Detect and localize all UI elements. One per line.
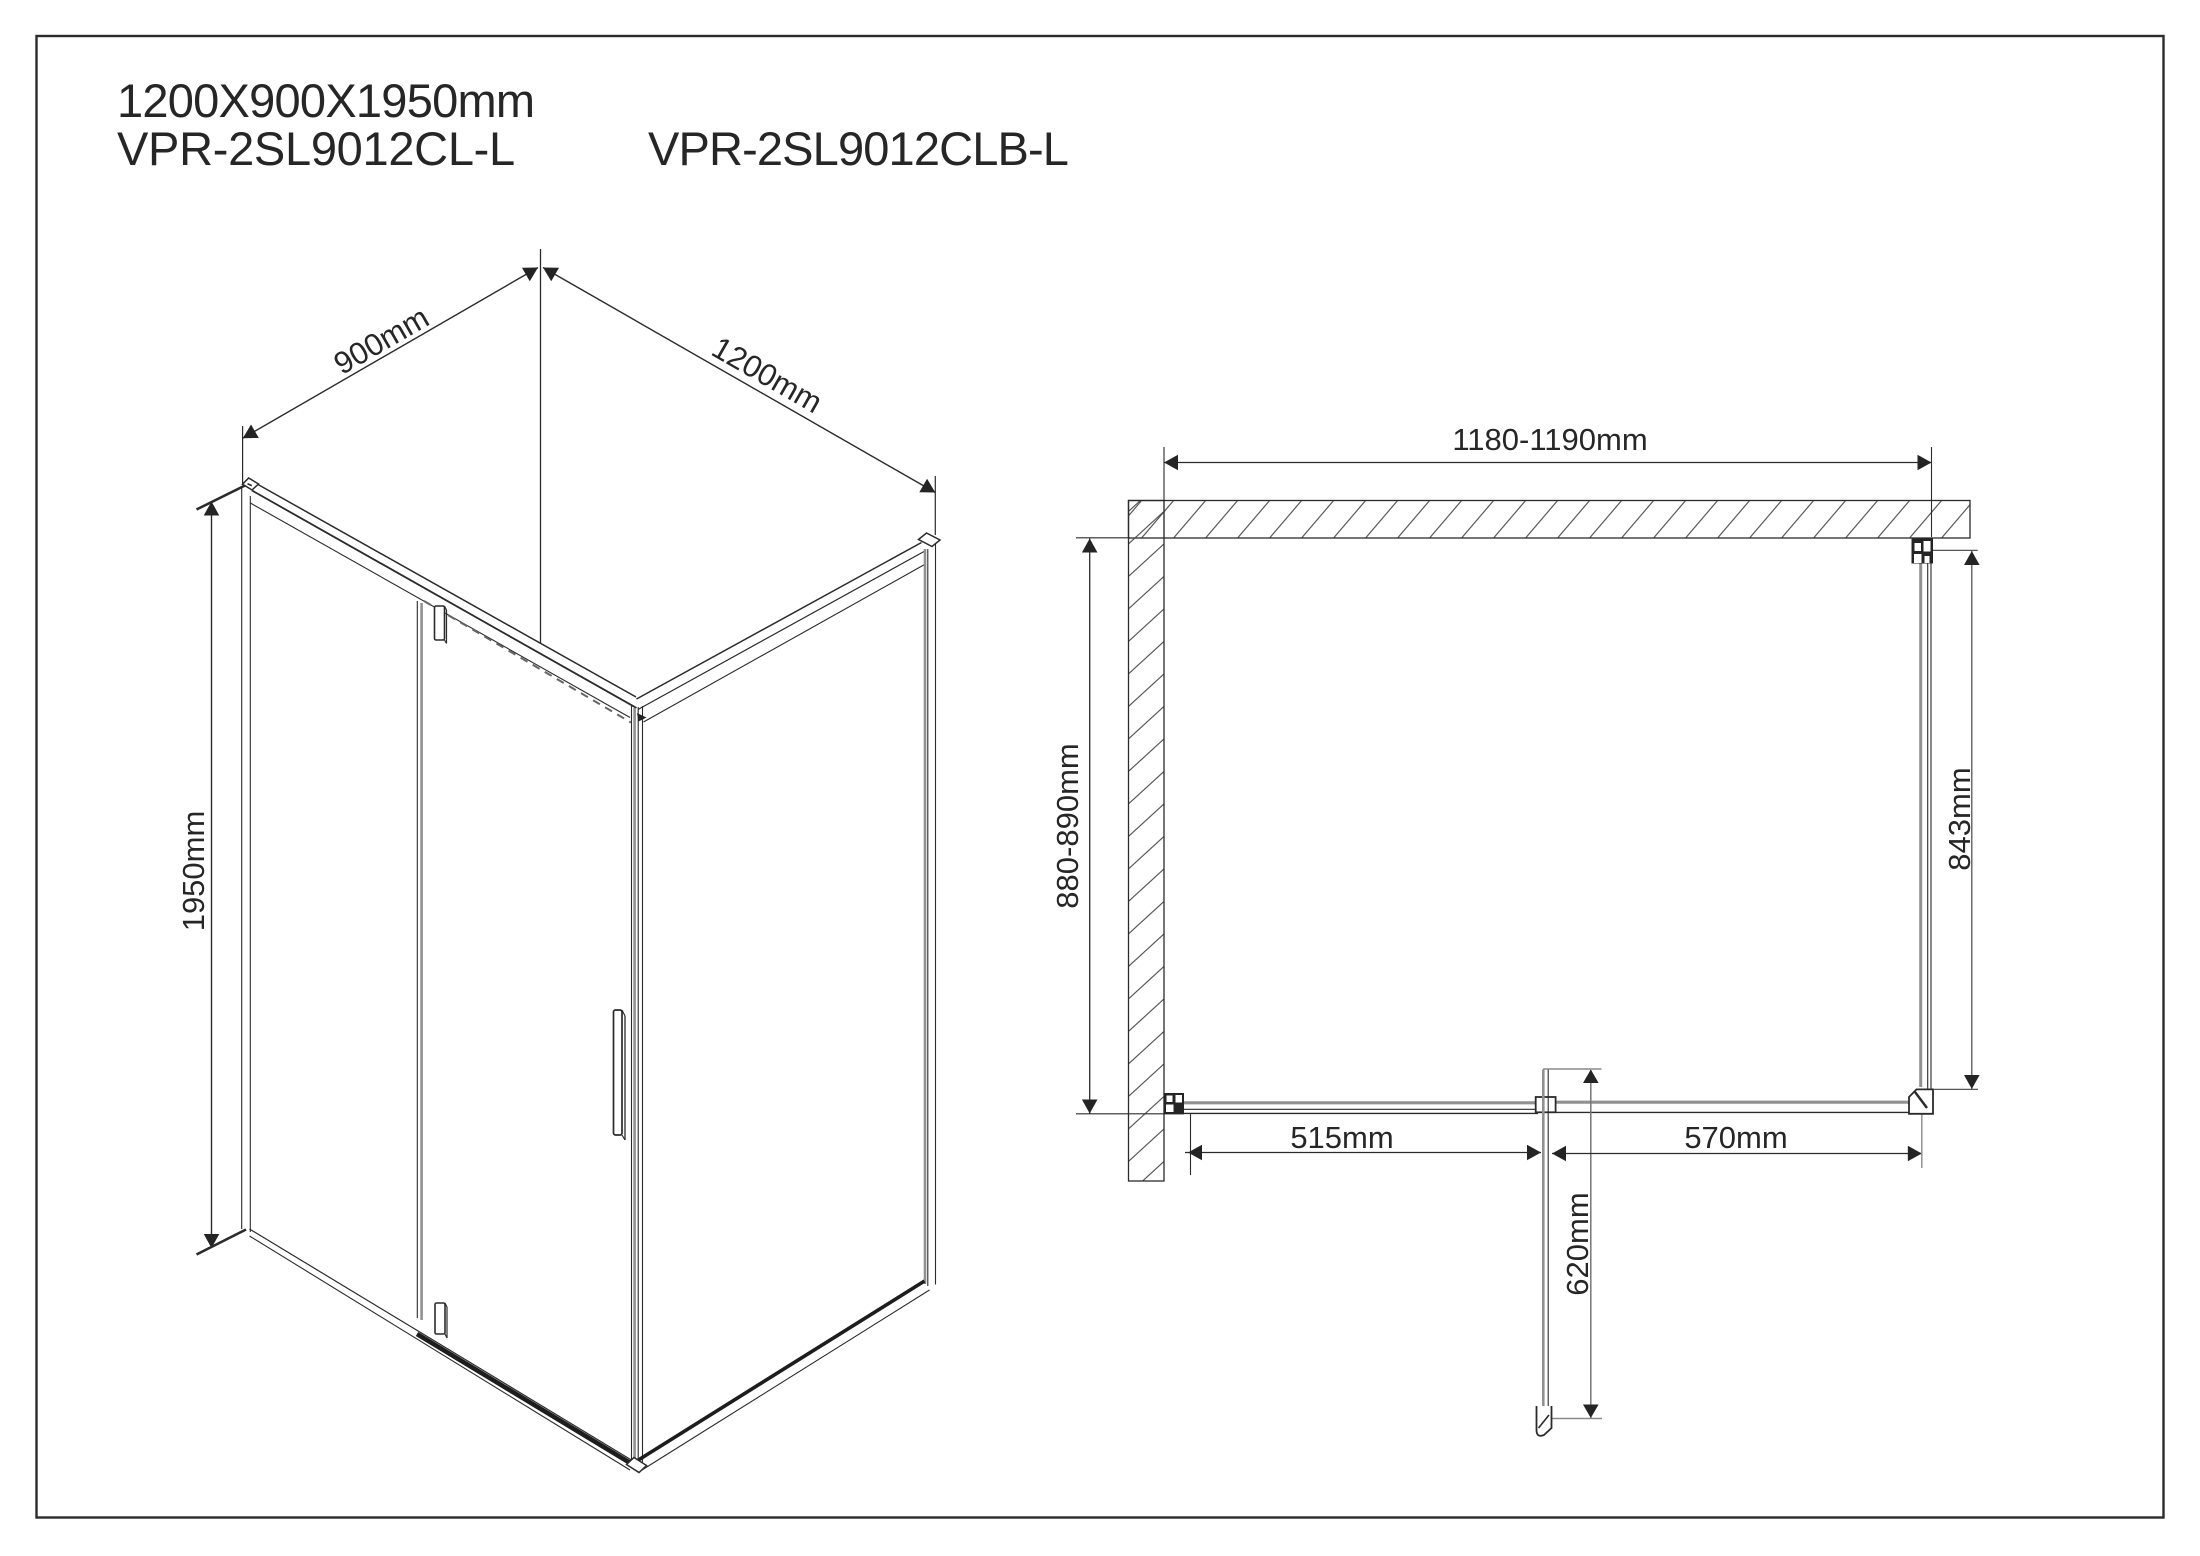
svg-text:900mm: 900mm [328, 299, 435, 381]
svg-text:VPR-2SL9012CLB-L: VPR-2SL9012CLB-L [648, 122, 1068, 175]
svg-text:880-890mm: 880-890mm [1050, 743, 1085, 908]
svg-text:570mm: 570mm [1684, 1120, 1787, 1155]
svg-text:1200X900X1950mm: 1200X900X1950mm [117, 74, 534, 127]
svg-text:VPR-2SL9012CL-L: VPR-2SL9012CL-L [117, 122, 515, 175]
svg-text:620mm: 620mm [1560, 1192, 1595, 1295]
svg-text:1950mm: 1950mm [176, 811, 211, 932]
svg-text:1200mm: 1200mm [706, 330, 828, 420]
svg-text:515mm: 515mm [1290, 1120, 1393, 1155]
svg-text:1180-1190mm: 1180-1190mm [1452, 422, 1647, 457]
svg-text:843mm: 843mm [1942, 767, 1977, 870]
